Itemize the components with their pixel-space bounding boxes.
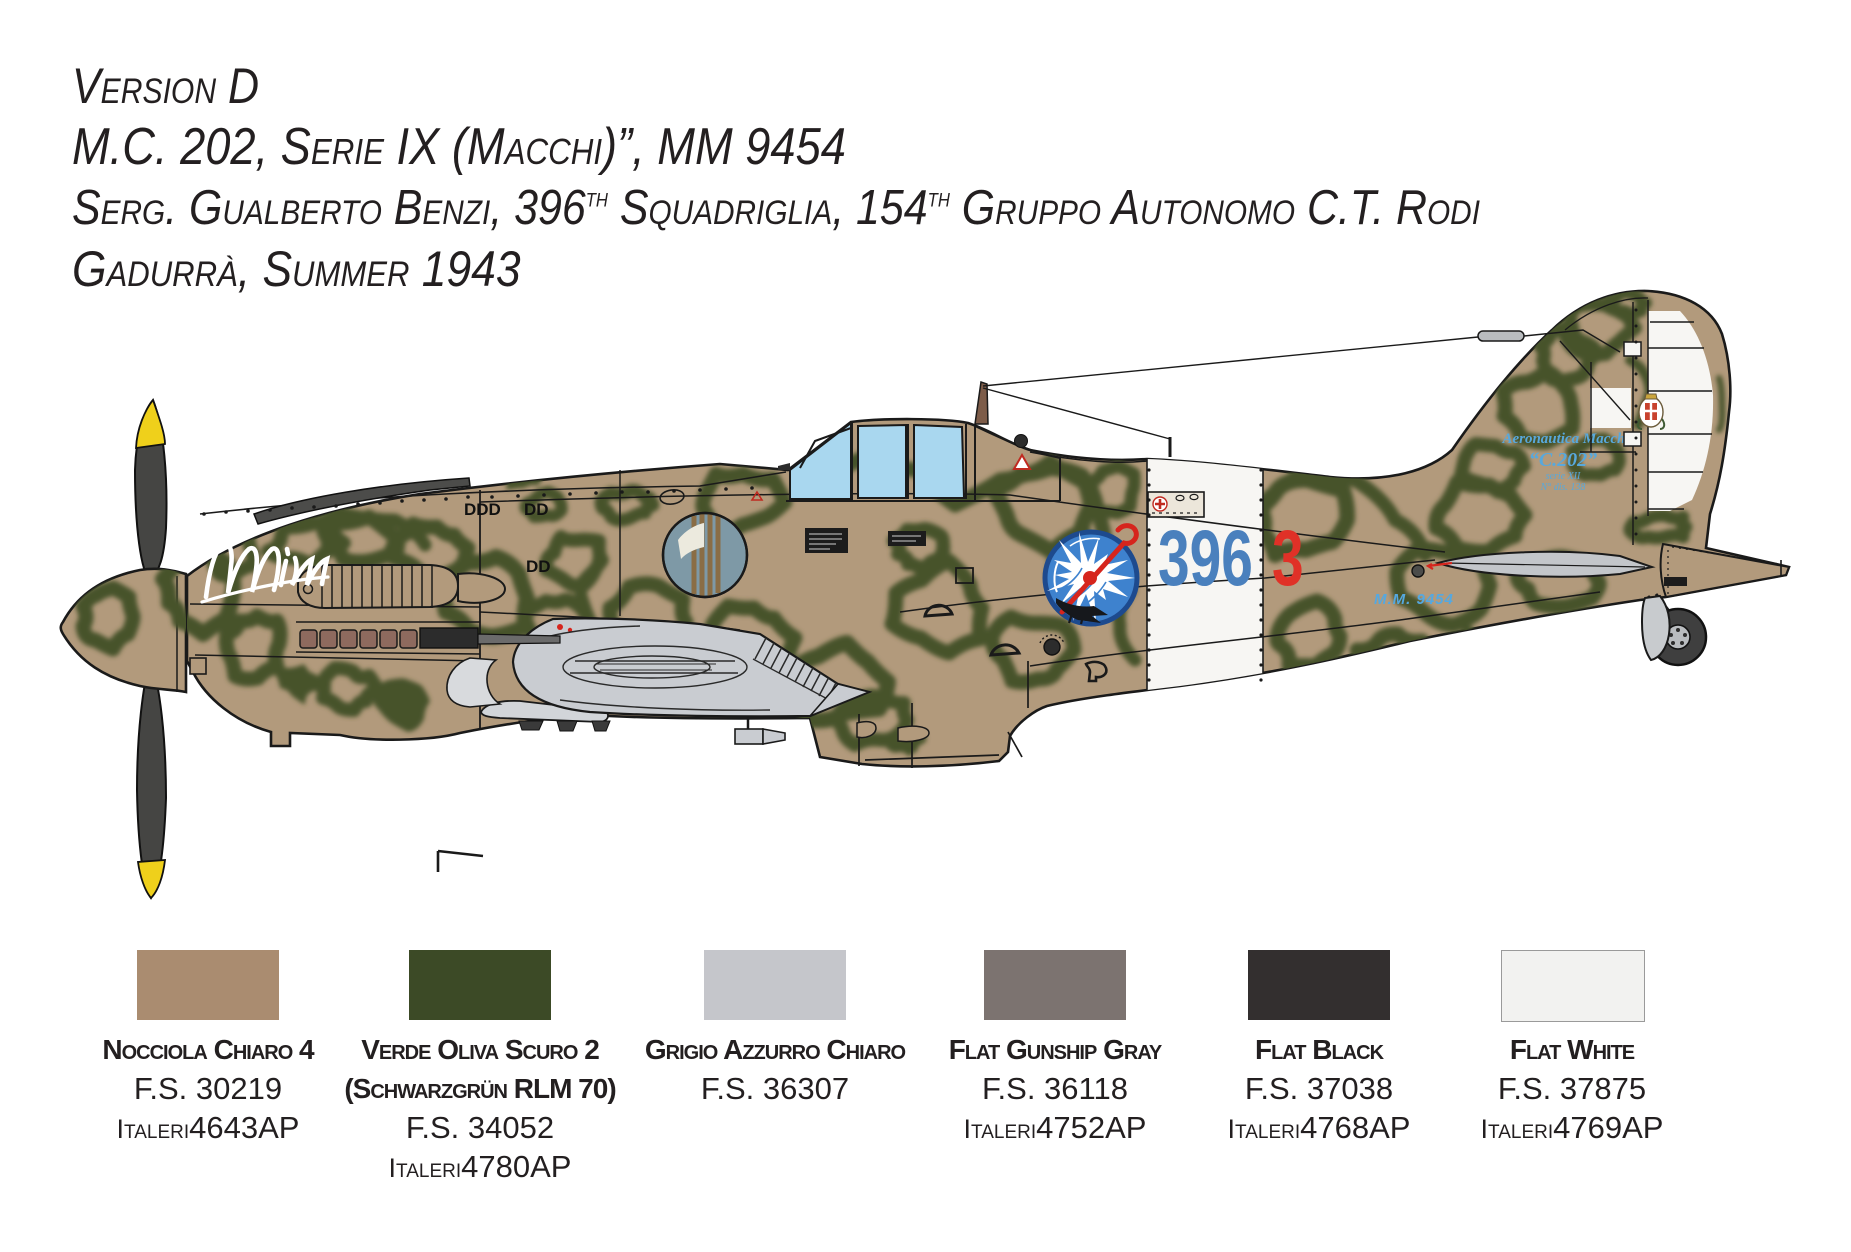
svg-text:M.M. 9454: M.M. 9454 <box>1374 591 1454 608</box>
svg-text:N° dis. 138: N° dis. 138 <box>1540 482 1586 493</box>
svg-text:DD: DD <box>526 557 551 576</box>
svg-text:396: 396 <box>1158 514 1253 602</box>
svg-text:Aeronautica Macchi: Aeronautica Macchi <box>1501 431 1630 447</box>
svg-text:DDD: DDD <box>464 500 501 519</box>
svg-text:3: 3 <box>1272 514 1304 602</box>
svg-text:DD: DD <box>524 500 549 519</box>
svg-text:serie XII: serie XII <box>1546 471 1581 482</box>
